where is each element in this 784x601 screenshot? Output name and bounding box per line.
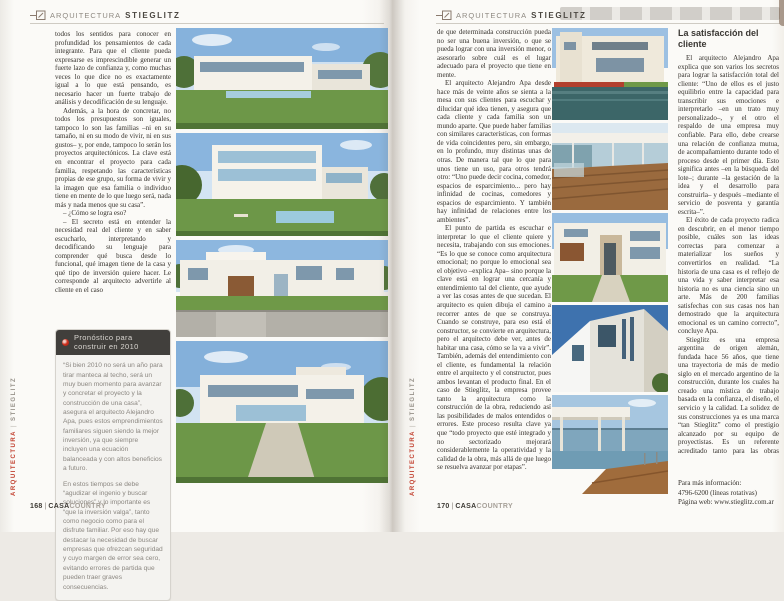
margin-label-separator: | xyxy=(410,421,416,430)
margin-label-client: STIEGLITZ xyxy=(410,377,416,421)
page-folio: 168|CASACOUNTRY xyxy=(30,503,106,510)
paragraph: Stieglitz es una empresa argentina de or… xyxy=(678,336,779,456)
forecast-box-title: Pronóstico para construir en 2010 xyxy=(74,334,164,351)
left-text-column: todos los sentidos para conocer en profu… xyxy=(55,30,171,601)
red-dot-icon xyxy=(62,339,69,346)
section-marker-icon xyxy=(436,10,452,21)
paragraph: de que determinada construcción pueda no… xyxy=(437,28,551,79)
section-title: ARQUITECTURA xyxy=(456,11,527,20)
paragraph: El arquitecto Alejandro Apa explica que … xyxy=(678,54,779,216)
margin-label-client: STIEGLITZ xyxy=(11,377,17,421)
page-header: ARQUITECTURA STIEGLITZ xyxy=(436,8,780,24)
house-photo xyxy=(552,213,668,302)
page-folio: 170|CASACOUNTRY xyxy=(437,503,513,510)
interview-answer: – El secreto está en entender la necesid… xyxy=(55,218,171,295)
section-title: ARQUITECTURA xyxy=(50,11,121,20)
interior-photo xyxy=(552,123,668,210)
lakeside-photo xyxy=(552,395,668,494)
margin-label: ARQUITECTURA|STIEGLITZ xyxy=(410,377,416,496)
house-photo xyxy=(176,133,388,236)
paragraph: todos los sentidos para conocer en profu… xyxy=(55,30,171,107)
magazine-brand-suffix: COUNTRY xyxy=(476,503,512,510)
folio-separator: | xyxy=(452,503,454,510)
paragraph: El punto de partida es escuchar e interp… xyxy=(437,224,551,471)
margin-label-section: ARQUITECTURA xyxy=(410,430,416,496)
contact-line: Para más información: xyxy=(678,479,774,489)
magazine-page-left: ARQUITECTURA STIEGLITZ todos los sentido… xyxy=(0,0,392,532)
margin-label: ARQUITECTURA|STIEGLITZ xyxy=(11,377,17,496)
forecast-box: Pronóstico para construir en 2010 “Si bi… xyxy=(55,329,171,601)
sidebar-heading: La satisfacción del cliente xyxy=(678,28,779,49)
magazine-brand: CASA xyxy=(455,503,476,510)
page-number: 170 xyxy=(437,503,450,510)
page-header: ARQUITECTURA STIEGLITZ xyxy=(30,8,384,24)
magazine-brand: CASA xyxy=(48,503,69,510)
contact-website: Página web: www.stieglitz.com.ar xyxy=(678,498,774,508)
sidebar-text: El arquitecto Alejandro Apa explica que … xyxy=(678,54,779,456)
scan-corner-artifact xyxy=(779,0,784,26)
building-photo xyxy=(552,305,668,392)
margin-label-separator: | xyxy=(11,421,17,430)
house-photo xyxy=(176,28,388,129)
right-page-text-column-2: La satisfacción del cliente El arquitect… xyxy=(678,28,779,510)
folio-separator: | xyxy=(45,503,47,510)
contact-info: Para más información: 4796-6200 (líneas … xyxy=(678,479,774,508)
article-text: todos los sentidos para conocer en profu… xyxy=(55,30,171,322)
house-photo xyxy=(552,28,668,120)
client-name: STIEGLITZ xyxy=(125,11,180,20)
forecast-paragraph: En estos tiempos se debe “agudizar el in… xyxy=(63,480,163,592)
house-photo xyxy=(176,341,388,483)
paragraph: Además, a la hora de concretar, no todos… xyxy=(55,107,171,209)
right-photo-stack xyxy=(552,28,668,497)
forecast-box-body: “Si bien 2010 no será un año para tirar … xyxy=(56,355,170,600)
forecast-box-header: Pronóstico para construir en 2010 xyxy=(56,330,170,355)
margin-label-section: ARQUITECTURA xyxy=(11,430,17,496)
right-page-text-column-1: de que determinada construcción pueda no… xyxy=(437,28,551,506)
paragraph: El arquitecto Alejandro Apa desde hace m… xyxy=(437,79,551,224)
house-photo xyxy=(176,240,388,337)
contact-phone: 4796-6200 (líneas rotativas) xyxy=(678,489,774,499)
interview-question: – ¿Cómo se logra eso? xyxy=(55,209,171,218)
section-marker-icon xyxy=(30,10,46,21)
forecast-paragraph: “Si bien 2010 no será un año para tirar … xyxy=(63,361,163,473)
client-name: STIEGLITZ xyxy=(531,11,586,20)
magazine-brand-suffix: COUNTRY xyxy=(69,503,105,510)
magazine-page-right: ARQUITECTURA STIEGLITZ de que determinad… xyxy=(392,0,784,532)
left-photo-stack xyxy=(176,28,388,487)
paragraph: El éxito de cada proyecto radica en desc… xyxy=(678,216,779,335)
page-number: 168 xyxy=(30,503,43,510)
